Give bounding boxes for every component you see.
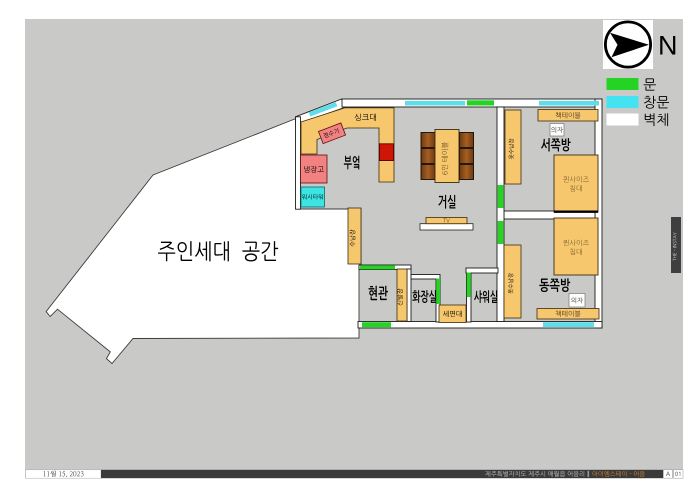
svg-text:N: N [658, 31, 678, 61]
